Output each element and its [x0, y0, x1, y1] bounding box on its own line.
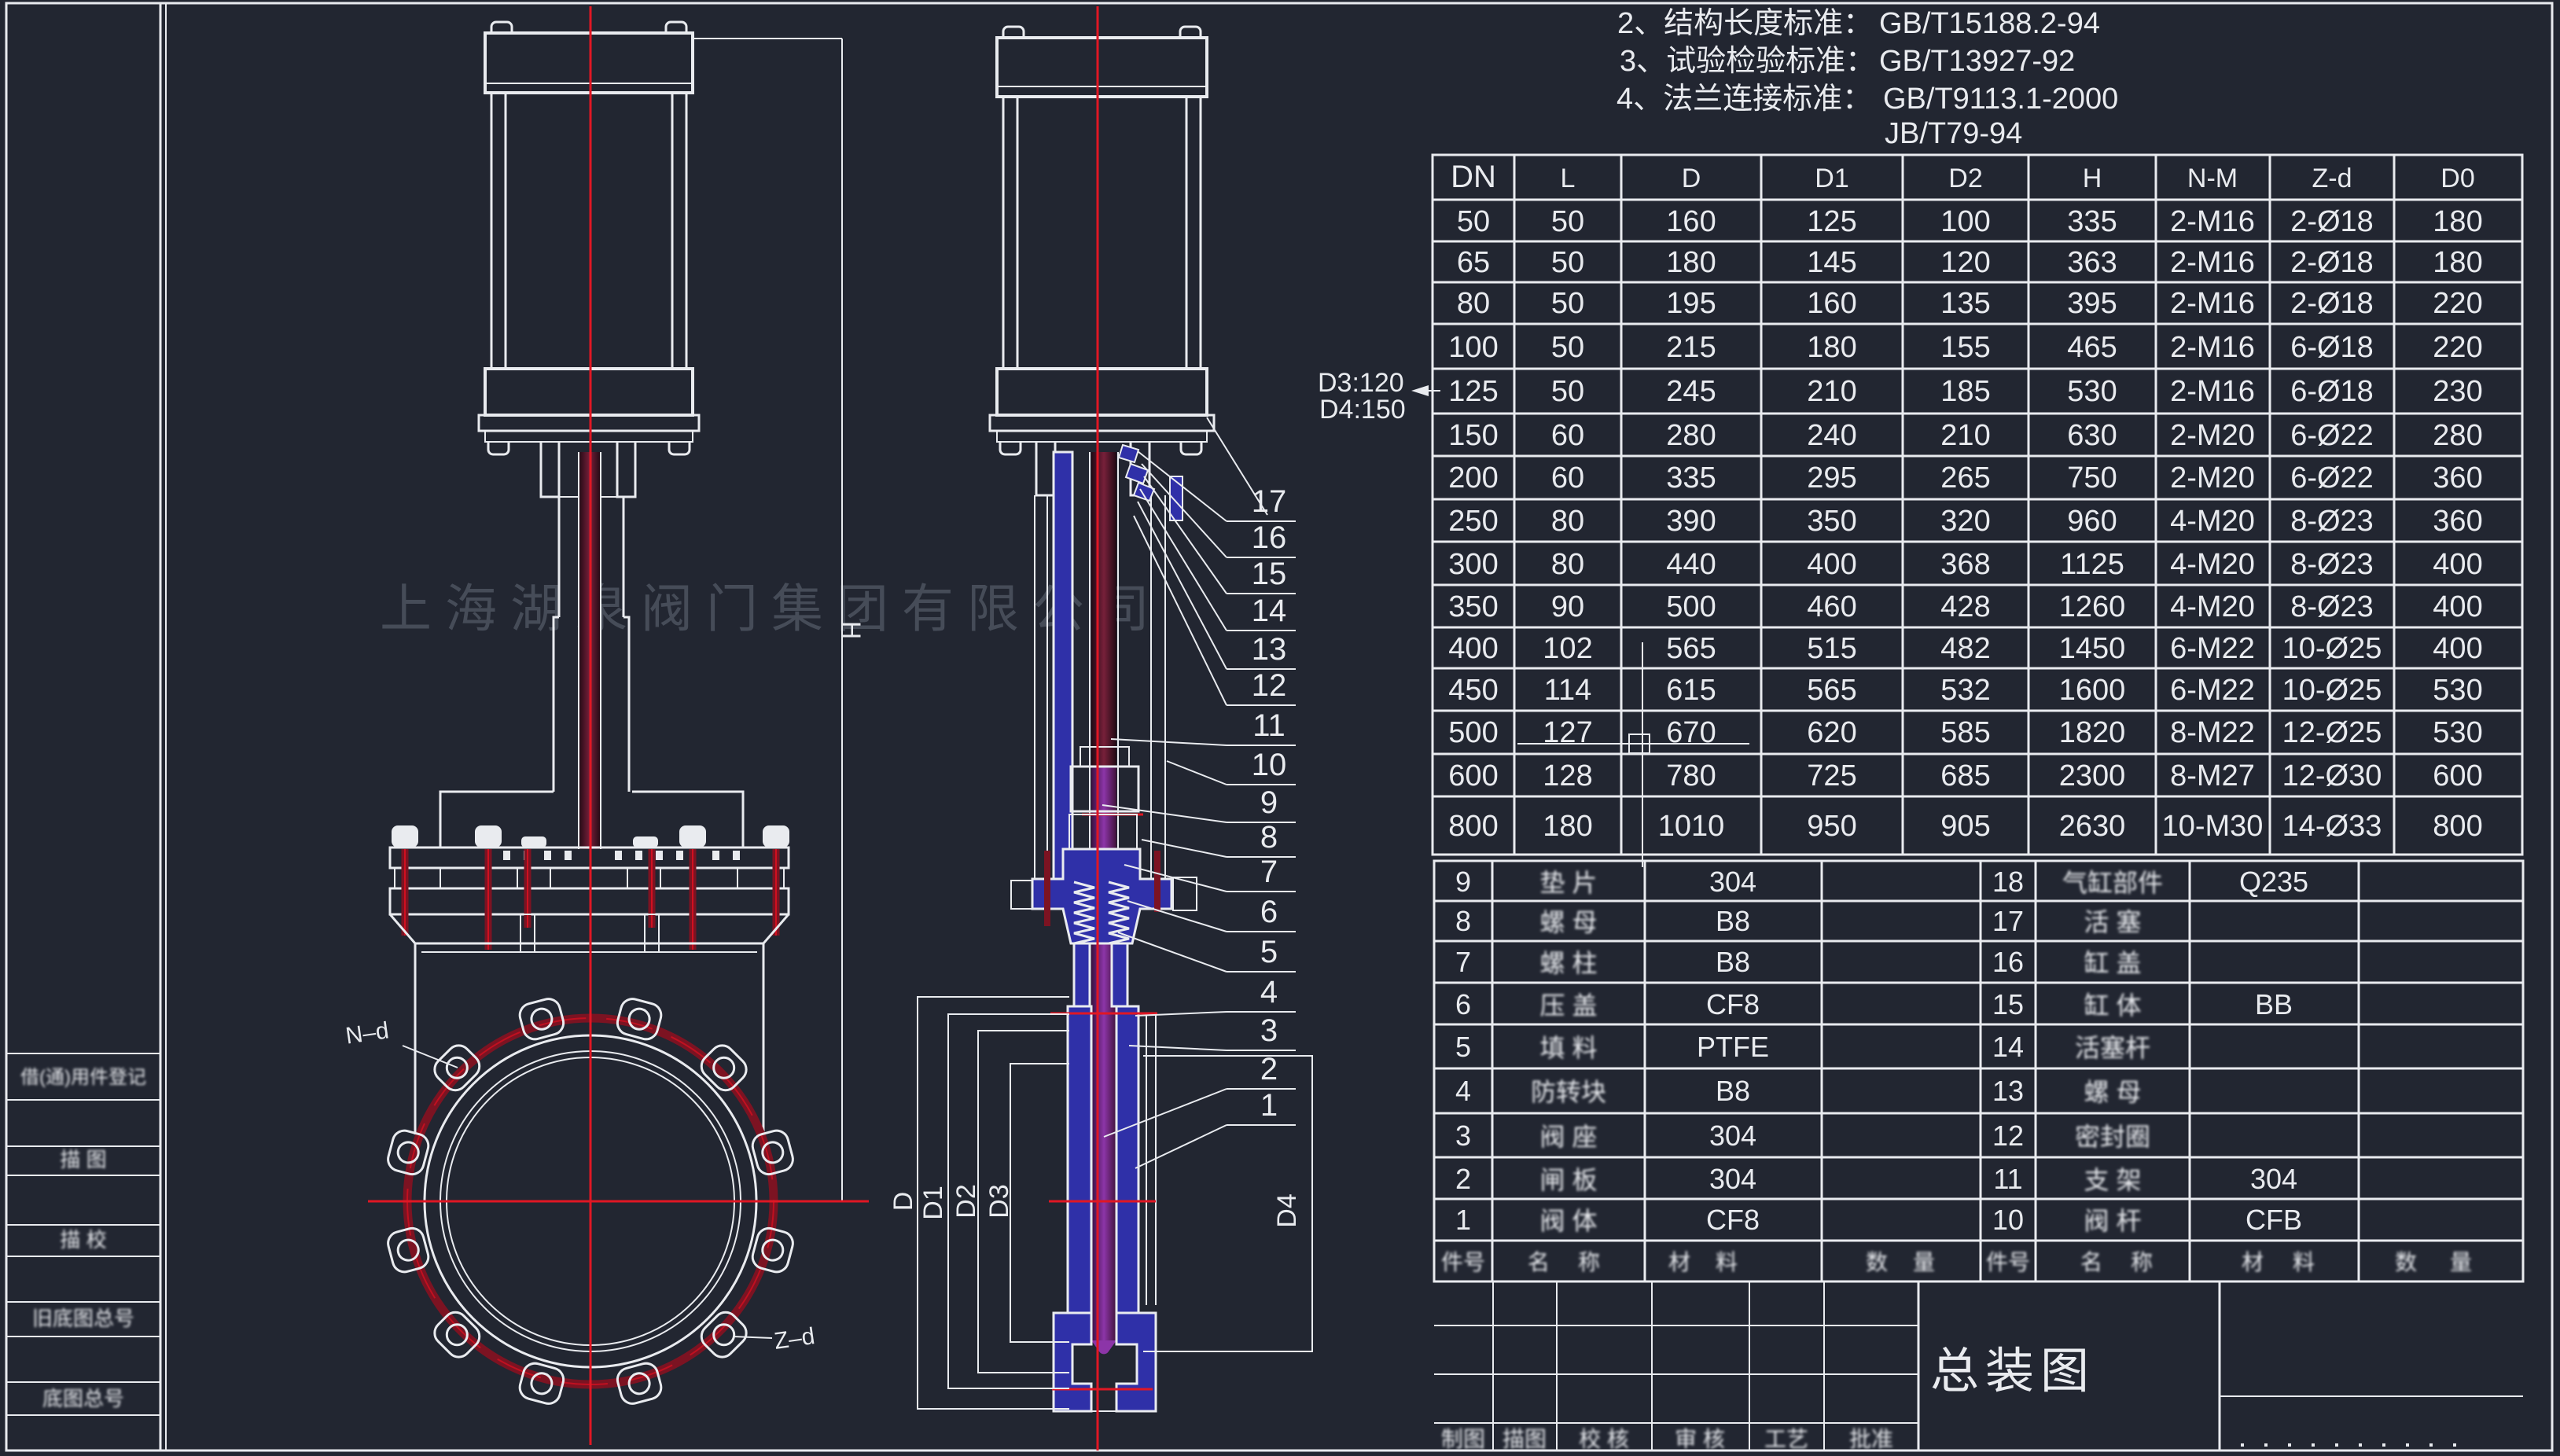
- svg-text:D2: D2: [951, 1184, 981, 1218]
- svg-text:8: 8: [1455, 905, 1471, 937]
- svg-text:18: 18: [1992, 866, 2024, 898]
- svg-text:2-M16: 2-M16: [2170, 205, 2255, 238]
- svg-text:1260: 1260: [2059, 590, 2126, 623]
- svg-text:12-Ø30: 12-Ø30: [2282, 759, 2382, 792]
- svg-text:GB/T13927-92: GB/T13927-92: [1879, 45, 2075, 78]
- svg-text:532: 532: [1940, 674, 1990, 707]
- svg-text:195: 195: [1666, 287, 1716, 320]
- svg-text:12: 12: [1252, 668, 1287, 703]
- svg-text:名: 名: [1528, 1250, 1550, 1274]
- svg-text:12-Ø25: 12-Ø25: [2282, 716, 2382, 749]
- svg-text:审 核: 审 核: [1675, 1427, 1725, 1451]
- svg-text:2-M16: 2-M16: [2170, 331, 2255, 364]
- svg-text:11: 11: [1993, 1163, 2022, 1195]
- svg-text:校 核: 校 核: [1579, 1427, 1629, 1451]
- svg-text:300: 300: [1448, 548, 1498, 581]
- svg-text:50: 50: [1457, 205, 1490, 238]
- svg-text:数: 数: [1866, 1250, 1888, 1274]
- svg-text:工艺: 工艺: [1764, 1427, 1808, 1451]
- svg-text:368: 368: [1940, 548, 1990, 581]
- svg-text:描 图: 描 图: [60, 1148, 106, 1171]
- svg-text:400: 400: [1448, 632, 1498, 665]
- svg-text:460: 460: [1807, 590, 1856, 623]
- svg-text:螺 母: 螺 母: [2084, 1078, 2142, 1106]
- svg-text:465: 465: [2067, 331, 2117, 364]
- svg-text:10-Ø25: 10-Ø25: [2282, 674, 2382, 707]
- svg-text:65: 65: [1457, 246, 1490, 279]
- svg-text:50: 50: [1551, 375, 1584, 408]
- svg-text:制图: 制图: [1441, 1427, 1485, 1451]
- svg-text:防转块: 防转块: [1531, 1078, 1606, 1106]
- svg-text:350: 350: [1448, 590, 1498, 623]
- svg-text:15: 15: [1992, 988, 2024, 1020]
- svg-text:335: 335: [2067, 205, 2117, 238]
- svg-text:15: 15: [1252, 557, 1287, 591]
- svg-text:215: 215: [1666, 331, 1716, 364]
- svg-text:垫 片: 垫 片: [1540, 869, 1598, 897]
- svg-text:14: 14: [1992, 1031, 2024, 1063]
- svg-text:2300: 2300: [2059, 759, 2126, 792]
- svg-text:17: 17: [1252, 484, 1287, 519]
- svg-text:料: 料: [1716, 1250, 1738, 1274]
- svg-text:称: 称: [2131, 1250, 2153, 1274]
- svg-text:185: 185: [1940, 375, 1990, 408]
- svg-text:量: 量: [2450, 1250, 2472, 1274]
- svg-text:CF8: CF8: [1706, 1204, 1760, 1236]
- svg-text:14: 14: [1252, 594, 1287, 628]
- svg-text:800: 800: [2433, 810, 2482, 843]
- svg-text:50: 50: [1551, 205, 1584, 238]
- svg-text:数: 数: [2395, 1250, 2417, 1274]
- svg-text:240: 240: [1807, 419, 1856, 452]
- svg-text:B8: B8: [1716, 1075, 1750, 1107]
- svg-text:180: 180: [1807, 331, 1856, 364]
- svg-text:压 盖: 压 盖: [1540, 991, 1598, 1020]
- svg-text:2-M16: 2-M16: [2170, 246, 2255, 279]
- svg-text:D0: D0: [2440, 164, 2474, 193]
- svg-text:CF8: CF8: [1706, 988, 1760, 1020]
- svg-text:9: 9: [1455, 866, 1471, 898]
- svg-text:10-Ø25: 10-Ø25: [2282, 632, 2382, 665]
- svg-text:D3:120: D3:120: [1318, 368, 1404, 398]
- svg-text:量: 量: [1913, 1250, 1935, 1274]
- svg-text:12: 12: [1992, 1120, 2024, 1152]
- svg-text:180: 180: [1666, 246, 1716, 279]
- svg-text:件号: 件号: [1986, 1250, 2030, 1274]
- svg-text:80: 80: [1457, 287, 1490, 320]
- svg-text:265: 265: [1940, 461, 1990, 495]
- svg-text:90: 90: [1551, 590, 1584, 623]
- svg-text:620: 620: [1807, 716, 1856, 749]
- svg-text:5: 5: [1455, 1031, 1471, 1063]
- svg-text:210: 210: [1807, 375, 1856, 408]
- svg-text:450: 450: [1448, 674, 1498, 707]
- svg-text:145: 145: [1807, 246, 1856, 279]
- svg-text:D2: D2: [1948, 164, 1982, 193]
- svg-text:6-Ø18: 6-Ø18: [2290, 375, 2374, 408]
- svg-text:5: 5: [1260, 935, 1278, 969]
- svg-text:950: 950: [1807, 810, 1856, 843]
- svg-text:360: 360: [2433, 505, 2482, 538]
- svg-text:上海湖泉阀门集团有限公司: 上海湖泉阀门集团有限公司: [380, 579, 1163, 638]
- svg-text:565: 565: [1666, 632, 1716, 665]
- svg-text:螺 母: 螺 母: [1540, 908, 1598, 936]
- svg-text:17: 17: [1992, 905, 2024, 937]
- svg-text:H: H: [837, 621, 866, 639]
- svg-text:7: 7: [1260, 855, 1278, 889]
- svg-text:350: 350: [1807, 505, 1856, 538]
- svg-text:50: 50: [1551, 246, 1584, 279]
- svg-text:60: 60: [1551, 419, 1584, 452]
- svg-text:180: 180: [2433, 205, 2482, 238]
- svg-text:50: 50: [1551, 287, 1584, 320]
- svg-text:50: 50: [1551, 331, 1584, 364]
- svg-text:600: 600: [2433, 759, 2482, 792]
- svg-text:304: 304: [1709, 866, 1756, 898]
- svg-text:220: 220: [2433, 287, 2482, 320]
- svg-text:1: 1: [1455, 1204, 1471, 1236]
- svg-text:Z-d: Z-d: [2312, 164, 2352, 193]
- svg-text:245: 245: [1666, 375, 1716, 408]
- svg-text:1450: 1450: [2059, 632, 2126, 665]
- svg-text:Q235: Q235: [2239, 866, 2308, 898]
- svg-text:密封圈: 密封圈: [2075, 1123, 2150, 1151]
- svg-text:3: 3: [1455, 1120, 1471, 1152]
- svg-text:180: 180: [1543, 810, 1592, 843]
- svg-text:600: 600: [1448, 759, 1498, 792]
- svg-text:200: 200: [1448, 461, 1498, 495]
- svg-text:2: 2: [1455, 1163, 1471, 1195]
- svg-text:材: 材: [1668, 1250, 1690, 1274]
- svg-text:1: 1: [1260, 1088, 1278, 1123]
- svg-text:2-M16: 2-M16: [2170, 287, 2255, 320]
- svg-text:390: 390: [1666, 505, 1716, 538]
- svg-text:1010: 1010: [1658, 810, 1725, 843]
- svg-text:363: 363: [2067, 246, 2117, 279]
- svg-text:6-M22: 6-M22: [2170, 674, 2255, 707]
- svg-text:400: 400: [2433, 590, 2482, 623]
- svg-text:500: 500: [1666, 590, 1716, 623]
- svg-text:2-M16: 2-M16: [2170, 375, 2255, 408]
- svg-text:4-M20: 4-M20: [2170, 548, 2255, 581]
- svg-text:9: 9: [1260, 785, 1278, 820]
- svg-text:6-M22: 6-M22: [2170, 632, 2255, 665]
- svg-text:D4:150: D4:150: [1319, 395, 1406, 425]
- svg-text:CFB: CFB: [2246, 1204, 2302, 1236]
- svg-text:230: 230: [2433, 375, 2482, 408]
- svg-text:10: 10: [1992, 1204, 2024, 1236]
- svg-text:125: 125: [1807, 205, 1856, 238]
- svg-text:件号: 件号: [1441, 1250, 1485, 1274]
- svg-text:4-M20: 4-M20: [2170, 505, 2255, 538]
- svg-text:750: 750: [2067, 461, 2117, 495]
- svg-text:B8: B8: [1716, 946, 1750, 978]
- svg-text:80: 80: [1551, 548, 1584, 581]
- svg-text:描图: 描图: [1503, 1427, 1547, 1451]
- svg-text:8-M22: 8-M22: [2170, 716, 2255, 749]
- svg-text:335: 335: [1666, 461, 1716, 495]
- svg-text:295: 295: [1807, 461, 1856, 495]
- svg-text:304: 304: [2250, 1163, 2297, 1195]
- svg-text:借(通)用件登记: 借(通)用件登记: [20, 1067, 146, 1088]
- svg-text:80: 80: [1551, 505, 1584, 538]
- svg-text:8-Ø23: 8-Ø23: [2290, 590, 2374, 623]
- svg-text:530: 530: [2067, 375, 2117, 408]
- svg-text:PTFE: PTFE: [1697, 1031, 1769, 1063]
- svg-text:114: 114: [1544, 674, 1592, 707]
- svg-text:7: 7: [1455, 946, 1471, 978]
- svg-text:4: 4: [1455, 1075, 1471, 1107]
- svg-text:2-Ø18: 2-Ø18: [2290, 287, 2374, 320]
- svg-text:13: 13: [1992, 1075, 2024, 1107]
- svg-text:13: 13: [1252, 632, 1287, 667]
- svg-text:120: 120: [1940, 246, 1990, 279]
- svg-text:11: 11: [1252, 708, 1286, 743]
- svg-text:160: 160: [1666, 205, 1716, 238]
- svg-text:100: 100: [1448, 331, 1498, 364]
- svg-text:780: 780: [1666, 759, 1716, 792]
- svg-text:旧底图总号: 旧底图总号: [32, 1307, 134, 1330]
- svg-text:565: 565: [1807, 674, 1856, 707]
- svg-text:2-M20: 2-M20: [2170, 461, 2255, 495]
- svg-text:135: 135: [1940, 287, 1990, 320]
- svg-text:料: 料: [2293, 1250, 2315, 1274]
- svg-text:250: 250: [1448, 505, 1498, 538]
- svg-text:D3: D3: [984, 1184, 1014, 1218]
- svg-text:阀 座: 阀 座: [1540, 1123, 1598, 1151]
- svg-text:530: 530: [2433, 674, 2482, 707]
- svg-text:2、结构长度标准：: 2、结构长度标准：: [1617, 7, 1873, 40]
- svg-text:100: 100: [1940, 205, 1990, 238]
- svg-text:阀 体: 阀 体: [1540, 1207, 1598, 1235]
- svg-text:2-Ø18: 2-Ø18: [2290, 246, 2374, 279]
- svg-text:1820: 1820: [2059, 716, 2126, 749]
- svg-text:GB/T15188.2-94: GB/T15188.2-94: [1879, 7, 2100, 40]
- svg-text:4: 4: [1260, 975, 1278, 1009]
- svg-text:515: 515: [1807, 632, 1856, 665]
- svg-text:6-Ø22: 6-Ø22: [2290, 461, 2374, 495]
- svg-text:总装图: 总装图: [1930, 1344, 2095, 1399]
- svg-text:615: 615: [1666, 674, 1716, 707]
- svg-text:2630: 2630: [2059, 810, 2126, 843]
- svg-text:D: D: [1682, 164, 1701, 193]
- svg-text:482: 482: [1940, 632, 1990, 665]
- svg-text:名: 名: [2080, 1250, 2102, 1274]
- svg-text:8-Ø23: 8-Ø23: [2290, 548, 2374, 581]
- svg-text:6-Ø22: 6-Ø22: [2290, 419, 2374, 452]
- svg-text:128: 128: [1543, 759, 1592, 792]
- svg-text:B8: B8: [1716, 905, 1750, 937]
- svg-text:JB/T79-94: JB/T79-94: [1885, 117, 2022, 150]
- svg-text:6: 6: [1455, 988, 1471, 1020]
- svg-text:H: H: [2083, 164, 2102, 193]
- svg-text:缸 盖: 缸 盖: [2084, 949, 2142, 977]
- svg-text:阀 杆: 阀 杆: [2084, 1207, 2142, 1235]
- svg-text:批准: 批准: [1849, 1427, 1893, 1451]
- svg-text:活 塞: 活 塞: [2084, 908, 2142, 936]
- svg-text:DN: DN: [1451, 160, 1496, 194]
- svg-text:440: 440: [1666, 548, 1716, 581]
- svg-text:400: 400: [2433, 548, 2482, 581]
- svg-text:102: 102: [1543, 632, 1592, 665]
- svg-text:16: 16: [1992, 946, 2024, 978]
- svg-text:630: 630: [2067, 419, 2117, 452]
- svg-text:8-Ø23: 8-Ø23: [2290, 505, 2374, 538]
- svg-text:400: 400: [1807, 548, 1856, 581]
- svg-text:闸 板: 闸 板: [1540, 1166, 1598, 1194]
- svg-text:960: 960: [2067, 505, 2117, 538]
- svg-text:2: 2: [1260, 1052, 1278, 1086]
- svg-text:280: 280: [1666, 419, 1716, 452]
- svg-text:14-Ø33: 14-Ø33: [2282, 810, 2382, 843]
- svg-text:304: 304: [1709, 1120, 1756, 1152]
- svg-text:3、试验检验标准：: 3、试验检验标准：: [1620, 45, 1875, 78]
- svg-text:60: 60: [1551, 461, 1584, 495]
- svg-text:395: 395: [2067, 287, 2117, 320]
- svg-text:8: 8: [1260, 820, 1278, 855]
- svg-text:500: 500: [1448, 716, 1498, 749]
- svg-text:气缸部件: 气缸部件: [2062, 869, 2163, 897]
- svg-text:155: 155: [1940, 331, 1990, 364]
- svg-text:1600: 1600: [2059, 674, 2126, 707]
- svg-text:16: 16: [1252, 520, 1287, 555]
- svg-text:N-M: N-M: [2187, 164, 2238, 193]
- svg-text:D4: D4: [1272, 1193, 1302, 1227]
- svg-text:400: 400: [2433, 632, 2482, 665]
- svg-text:220: 220: [2433, 331, 2482, 364]
- svg-text:L: L: [1561, 164, 1576, 193]
- svg-text:428: 428: [1940, 590, 1990, 623]
- svg-text:530: 530: [2433, 716, 2482, 749]
- svg-text:2-Ø18: 2-Ø18: [2290, 205, 2374, 238]
- svg-text:D1: D1: [1815, 164, 1848, 193]
- svg-text:10-M30: 10-M30: [2162, 810, 2264, 843]
- svg-text:125: 125: [1448, 375, 1498, 408]
- svg-text:304: 304: [1709, 1163, 1756, 1195]
- svg-text:描 校: 描 校: [60, 1228, 106, 1252]
- svg-text:585: 585: [1940, 716, 1990, 749]
- svg-text:210: 210: [1940, 419, 1990, 452]
- svg-text:3: 3: [1260, 1013, 1278, 1048]
- svg-text:底图总号: 底图总号: [42, 1387, 124, 1410]
- svg-text:10: 10: [1252, 748, 1287, 782]
- svg-text:320: 320: [1940, 505, 1990, 538]
- svg-text:725: 725: [1807, 759, 1856, 792]
- svg-text:称: 称: [1578, 1250, 1600, 1274]
- svg-text:8-M27: 8-M27: [2170, 759, 2255, 792]
- svg-text:160: 160: [1807, 287, 1856, 320]
- svg-text:支 架: 支 架: [2084, 1166, 2142, 1194]
- svg-text:280: 280: [2433, 419, 2482, 452]
- svg-text:1125: 1125: [2060, 548, 2124, 581]
- svg-text:活塞杆: 活塞杆: [2075, 1034, 2150, 1062]
- svg-text:2-M20: 2-M20: [2170, 419, 2255, 452]
- svg-text:D: D: [888, 1192, 918, 1211]
- svg-text:150: 150: [1448, 419, 1498, 452]
- svg-text:6: 6: [1260, 895, 1278, 929]
- svg-text:360: 360: [2433, 461, 2482, 495]
- svg-text:6-Ø18: 6-Ø18: [2290, 331, 2374, 364]
- svg-text:螺 柱: 螺 柱: [1540, 949, 1598, 977]
- svg-text:缸 体: 缸 体: [2084, 991, 2142, 1020]
- svg-text:GB/T9113.1-2000: GB/T9113.1-2000: [1883, 83, 2118, 116]
- svg-text:800: 800: [1448, 810, 1498, 843]
- svg-text:材: 材: [2242, 1250, 2264, 1274]
- svg-text:905: 905: [1940, 810, 1990, 843]
- svg-text:685: 685: [1940, 759, 1990, 792]
- svg-text:4、法兰连接标准：: 4、法兰连接标准：: [1617, 83, 1872, 116]
- svg-text:4-M20: 4-M20: [2170, 590, 2255, 623]
- svg-text:180: 180: [2433, 246, 2482, 279]
- svg-text:填 料: 填 料: [1540, 1034, 1598, 1062]
- svg-text:D1: D1: [918, 1186, 948, 1219]
- svg-text:BB: BB: [2255, 988, 2293, 1020]
